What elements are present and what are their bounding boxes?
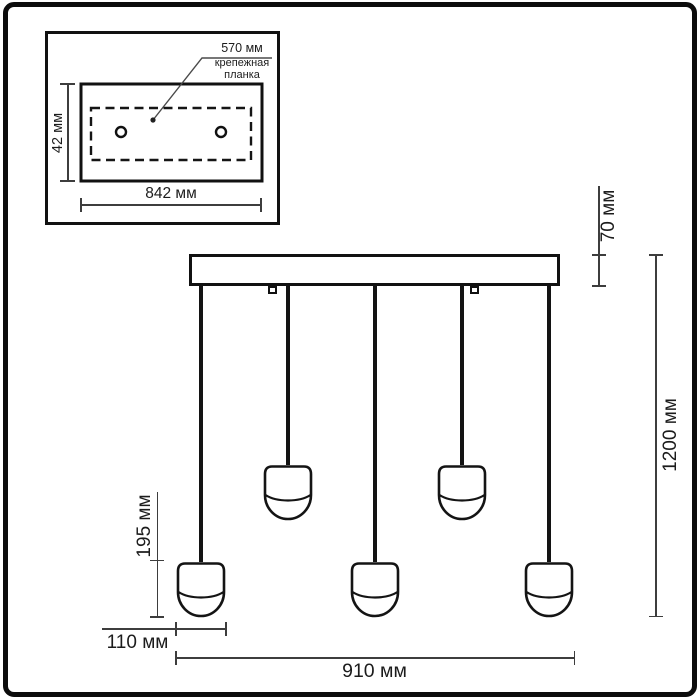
- dim-shade-width-tick-right: [225, 622, 227, 636]
- total-width-label: 910 мм: [312, 660, 437, 683]
- total-height-label: 1200 мм: [658, 375, 684, 495]
- pendant-shade-1: [176, 561, 226, 619]
- shade-outline: [526, 564, 572, 617]
- shade-width-label: 110 мм: [95, 632, 180, 654]
- dim-total-height-tick-bottom: [649, 616, 663, 618]
- bracket-leader-dot: [150, 117, 155, 122]
- plate-width-label: 842 мм: [111, 185, 231, 203]
- dim-shade-height-tick-bottom: [150, 616, 164, 618]
- dim-total-width-tick-right: [574, 651, 576, 665]
- pendant-cord-4: [460, 285, 464, 465]
- dim-canopy-height-tick-bottom: [592, 285, 606, 287]
- plate-height-label: 42 мм: [48, 83, 68, 183]
- bracket-name-line1: крепежная: [202, 58, 282, 70]
- bracket-name-line2: планка: [202, 70, 282, 82]
- cord-adjuster-left: [268, 286, 277, 294]
- pendant-shade-3: [350, 561, 400, 619]
- pendant-shade-2: [263, 464, 313, 522]
- dim-shade-width-line: [102, 628, 227, 630]
- canopy-bar: [189, 254, 560, 286]
- mounting-hole-right: [216, 127, 226, 137]
- pendant-shade-5: [524, 561, 574, 619]
- dim-total-height-tick-top: [649, 254, 663, 256]
- pendant-shade-4: [437, 464, 487, 522]
- canopy-height-label: 70 мм: [597, 166, 621, 266]
- pendant-cord-5: [547, 285, 551, 562]
- pendant-cord-2: [286, 285, 290, 465]
- canopy-top-view-outline: [81, 84, 262, 181]
- shade-outline: [439, 467, 485, 520]
- dim-total-height-line: [655, 255, 657, 617]
- mounting-hole-left: [116, 127, 126, 137]
- pendant-cord-3: [373, 285, 377, 562]
- dim-plate-width-line: [81, 204, 262, 206]
- dim-plate-width-tick-right: [260, 198, 262, 213]
- cord-adjuster-right: [470, 286, 479, 294]
- shade-height-label: 195 мм: [132, 466, 158, 586]
- shade-outline: [265, 467, 311, 520]
- pendant-cord-1: [199, 285, 203, 562]
- dim-plate-width-tick-left: [80, 198, 82, 213]
- bracket-name-label: крепежная планка: [202, 58, 282, 81]
- shade-outline: [178, 564, 224, 617]
- dim-total-width-tick-left: [175, 651, 177, 665]
- dim-total-width-line: [176, 657, 575, 659]
- bracket-width-label: 570 мм: [202, 41, 282, 55]
- shade-outline: [352, 564, 398, 617]
- dimension-drawing-page: { "inset": { "bracket_width_label": "570…: [0, 0, 700, 700]
